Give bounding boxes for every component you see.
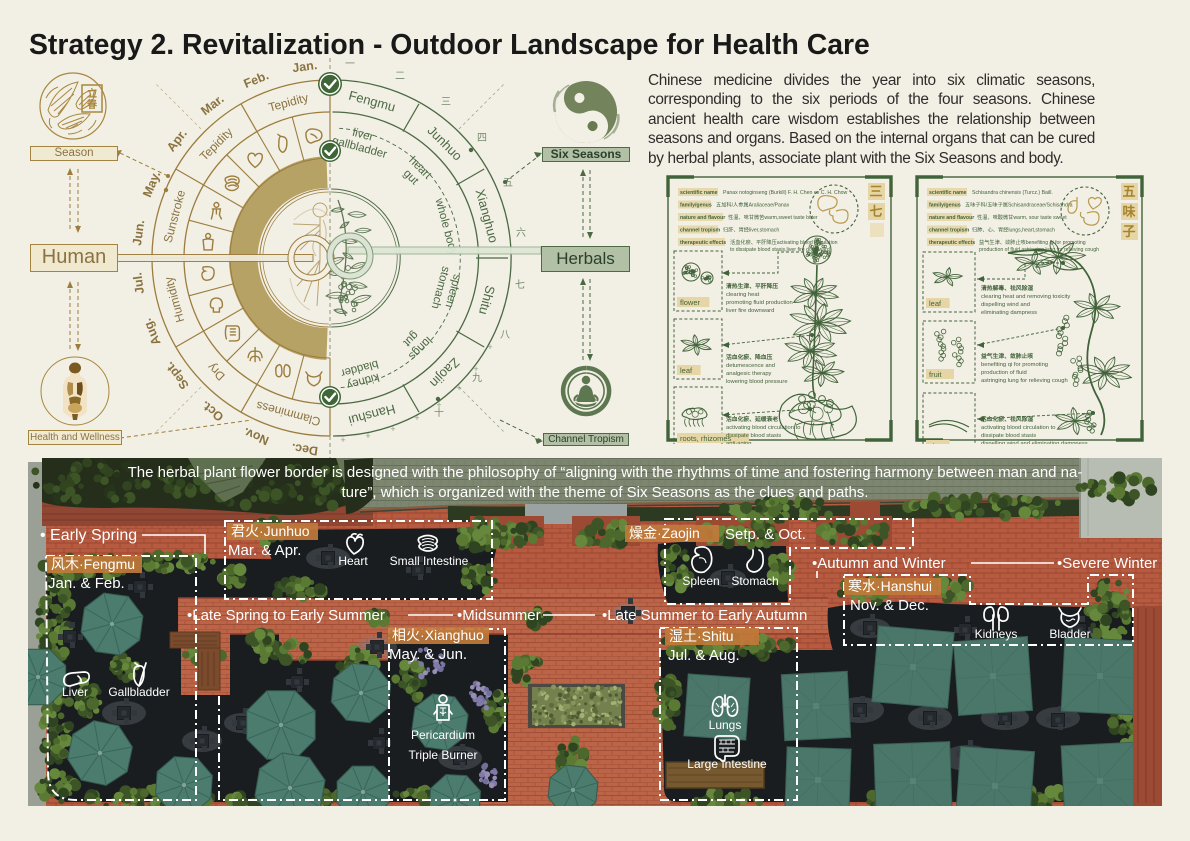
svg-text:Gallbladder: Gallbladder [108,685,169,699]
svg-text:+: + [473,364,478,374]
svg-text:dissipate blood stasis: dissipate blood stasis [726,433,781,439]
svg-text:Small Intestine: Small Intestine [390,554,469,568]
svg-text:+: + [340,435,345,445]
svg-text:Nov. & Dec.: Nov. & Dec. [850,597,929,614]
svg-text:+: + [365,431,370,441]
svg-text:Panax notoginseng (Burkill) F.: Panax notoginseng (Burkill) F. H. Chen e… [723,190,848,196]
svg-text:七: 七 [515,279,525,291]
svg-text:dispelling wind and: dispelling wind and [981,302,1030,308]
svg-text:scientific name: scientific name [929,190,967,196]
svg-text:• Early Spring: • Early Spring [40,527,137,544]
svg-text:Jan.: Jan. [291,58,318,75]
svg-text:therapeutic effects: therapeutic effects [680,240,726,246]
svg-text:scientific name: scientific name [680,190,718,196]
svg-text:益气生津、敛肺止咳benefiting qi for pro: 益气生津、敛肺止咳benefiting qi for promoting [979,238,1086,246]
svg-text:Heart: Heart [338,554,368,568]
svg-text:+: + [487,342,492,352]
svg-text:活血化瘀、降血压: 活血化瘀、降血压 [726,353,773,361]
svg-text:活血化瘀、延缓衰老: 活血化瘀、延缓衰老 [726,415,778,423]
svg-text:益气生津、敛肺止咳: 益气生津、敛肺止咳 [981,352,1033,360]
svg-text:nature and flavour: nature and flavour [929,215,974,221]
svg-text:燥金·Zaojin: 燥金·Zaojin [629,525,700,541]
svg-text:channel tropism: channel tropism [929,228,969,234]
svg-text:therapeutic effects: therapeutic effects [929,240,975,246]
svg-text:ture”, which is organized with: ture”, which is organized with the theme… [342,484,869,501]
svg-text:味: 味 [1122,204,1135,219]
svg-text:•Late Spring to Early Summer: •Late Spring to Early Summer [187,607,385,624]
svg-text:Kidneys: Kidneys [975,627,1018,641]
svg-text:Schisandra chinensis (Turcz.): Schisandra chinensis (Turcz.) Baill. [972,190,1053,196]
svg-text:风木·Fengmu: 风木·Fengmu [51,556,135,572]
svg-text:性温、味酸微甘warm, sour taste sweet: 性温、味酸微甘warm, sour taste sweet [977,213,1067,221]
svg-text:Lungs: Lungs [709,718,742,732]
svg-text:五加科/人参属Araliaceae/Panax: 五加科/人参属Araliaceae/Panax [716,201,790,209]
svg-text:立: 立 [87,87,97,100]
svg-text:春: 春 [87,98,97,111]
svg-text:六: 六 [516,227,526,239]
svg-text:寒水·Hanshui: 寒水·Hanshui [848,578,932,594]
svg-text:stem: stem [929,441,945,444]
svg-text:Mar. & Apr.: Mar. & Apr. [228,542,301,559]
svg-text:clearing heat: clearing heat [726,292,760,298]
svg-text:Aug.: Aug. [140,316,164,347]
svg-text:八: 八 [500,330,510,341]
svg-text:family/genus: family/genus [680,203,712,209]
svg-text:清热解毒、祛风除湿: 清热解毒、祛风除湿 [981,284,1033,292]
svg-text:三: 三 [869,184,882,199]
svg-text:leaf: leaf [680,366,693,375]
svg-text:Apr.: Apr. [164,127,190,155]
svg-text:Large Intestine: Large Intestine [687,757,767,771]
svg-text:Spleen: Spleen [682,574,719,588]
svg-text:活血化瘀、祛风除湿: 活血化瘀、祛风除湿 [981,415,1033,423]
svg-text:Mar.: Mar. [198,92,226,118]
svg-text:•Midsummer: •Midsummer [457,607,541,624]
svg-text:liver fire downward: liver fire downward [726,308,774,314]
svg-text:归肺、心、胃经lungs,heart,stomach: 归肺、心、胃经lungs,heart,stomach [972,226,1055,234]
svg-text:+: + [414,413,419,423]
svg-text:anti-aging: anti-aging [726,441,751,444]
svg-text:May. & Jun.: May. & Jun. [389,646,467,663]
svg-text:analgesic therapy: analgesic therapy [726,371,772,377]
svg-text:+: + [456,383,461,393]
svg-text:production of fluid: production of fluid [981,370,1027,376]
svg-text:Liver: Liver [62,685,88,699]
svg-text:•Severe Winter: •Severe Winter [1057,555,1157,572]
svg-text:Oct.: Oct. [199,398,227,424]
svg-text:+: + [436,400,441,410]
svg-text:归肝、胃经liver,stomach: 归肝、胃经liver,stomach [723,226,779,234]
svg-text:Nov.: Nov. [241,425,271,448]
svg-text:性温、味甘微苦warm,sweet taste bitter: 性温、味甘微苦warm,sweet taste bitter [728,213,818,221]
svg-text:eliminating dampness: eliminating dampness [981,310,1037,316]
svg-text:nature and flavour: nature and flavour [680,215,725,221]
svg-text:benefiting qi for promoting: benefiting qi for promoting [981,362,1048,368]
svg-text:+: + [390,424,395,434]
svg-text:roots, rhizomes: roots, rhizomes [680,434,732,443]
svg-text:Triple Burner: Triple Burner [409,748,478,762]
svg-text:Jan. & Feb.: Jan. & Feb. [48,575,125,592]
svg-text:Fengmu: Fengmu [347,88,397,115]
svg-text:channel tropism: channel tropism [680,228,720,234]
svg-text:五: 五 [1122,184,1135,199]
svg-text:May.: May. [140,169,163,199]
svg-text:flower: flower [680,298,701,307]
svg-text:detumescence and: detumescence and [726,363,775,369]
svg-text:Shitu: Shitu [476,284,498,317]
svg-text:family/genus: family/genus [929,203,961,209]
svg-text:astringing lung for relieving: astringing lung for relieving cough [981,378,1068,384]
svg-text:三: 三 [441,97,451,108]
svg-text:Tepidity: Tepidity [267,90,310,114]
svg-text:子: 子 [1122,224,1135,239]
svg-text:Jun.: Jun. [130,219,147,246]
svg-text:Jul. & Aug.: Jul. & Aug. [668,647,740,664]
svg-text:Setp. & Oct.: Setp. & Oct. [725,526,806,543]
svg-text:dissipate blood stasis: dissipate blood stasis [981,433,1036,439]
svg-text:清热生津、平肝降压: 清热生津、平肝降压 [726,282,778,290]
svg-text:君火·Junhuo: 君火·Junhuo [231,523,310,539]
svg-text:Bladder: Bladder [1049,627,1090,641]
svg-text:clearing heat and removing tox: clearing heat and removing toxicity [981,294,1070,300]
svg-text:五味子科/五味子属Schisandraceae/Schisa: 五味子科/五味子属Schisandraceae/Schisandra [965,201,1073,209]
svg-text:Dec.: Dec. [291,441,319,458]
svg-text:活血化瘀、平肝降压activating blood circ: 活血化瘀、平肝降压activating blood circulation [730,238,838,246]
svg-text:The herbal plant flower border: The herbal plant flower border is design… [128,464,1083,481]
svg-text:二: 二 [395,71,405,82]
svg-text:fruit: fruit [929,370,942,379]
svg-text:dispelling wind and eliminatin: dispelling wind and eliminating dampness [981,441,1088,444]
svg-text:Jul.: Jul. [130,272,147,295]
svg-text:Feb.: Feb. [242,68,271,91]
svg-text:一: 一 [345,59,355,70]
svg-text:Pericardium: Pericardium [411,728,475,742]
svg-text:湿土·Shitu: 湿土·Shitu [669,628,734,644]
svg-text:四: 四 [477,133,487,144]
svg-text:activating blood circulation t: activating blood circulation to [726,425,800,431]
svg-text:七: 七 [869,204,882,219]
svg-text:Dry: Dry [205,360,228,383]
svg-text:相火·Xianghuo: 相火·Xianghuo [392,627,484,643]
svg-text:lowering blood pressure: lowering blood pressure [726,379,788,385]
svg-text:Stomach: Stomach [731,574,778,588]
svg-text:leaf: leaf [929,299,942,308]
svg-text:Humidity: Humidity [162,275,188,324]
svg-text:activating blood circulation t: activating blood circulation to [981,425,1055,431]
svg-text:Sunstroke: Sunstroke [161,188,189,244]
svg-text:promoting fluid production: promoting fluid production [726,300,793,306]
svg-text:•Autumn and Winter: •Autumn and Winter [812,555,946,572]
svg-text:•Late Summer to Early Autumn: •Late Summer to Early Autumn [602,607,807,624]
